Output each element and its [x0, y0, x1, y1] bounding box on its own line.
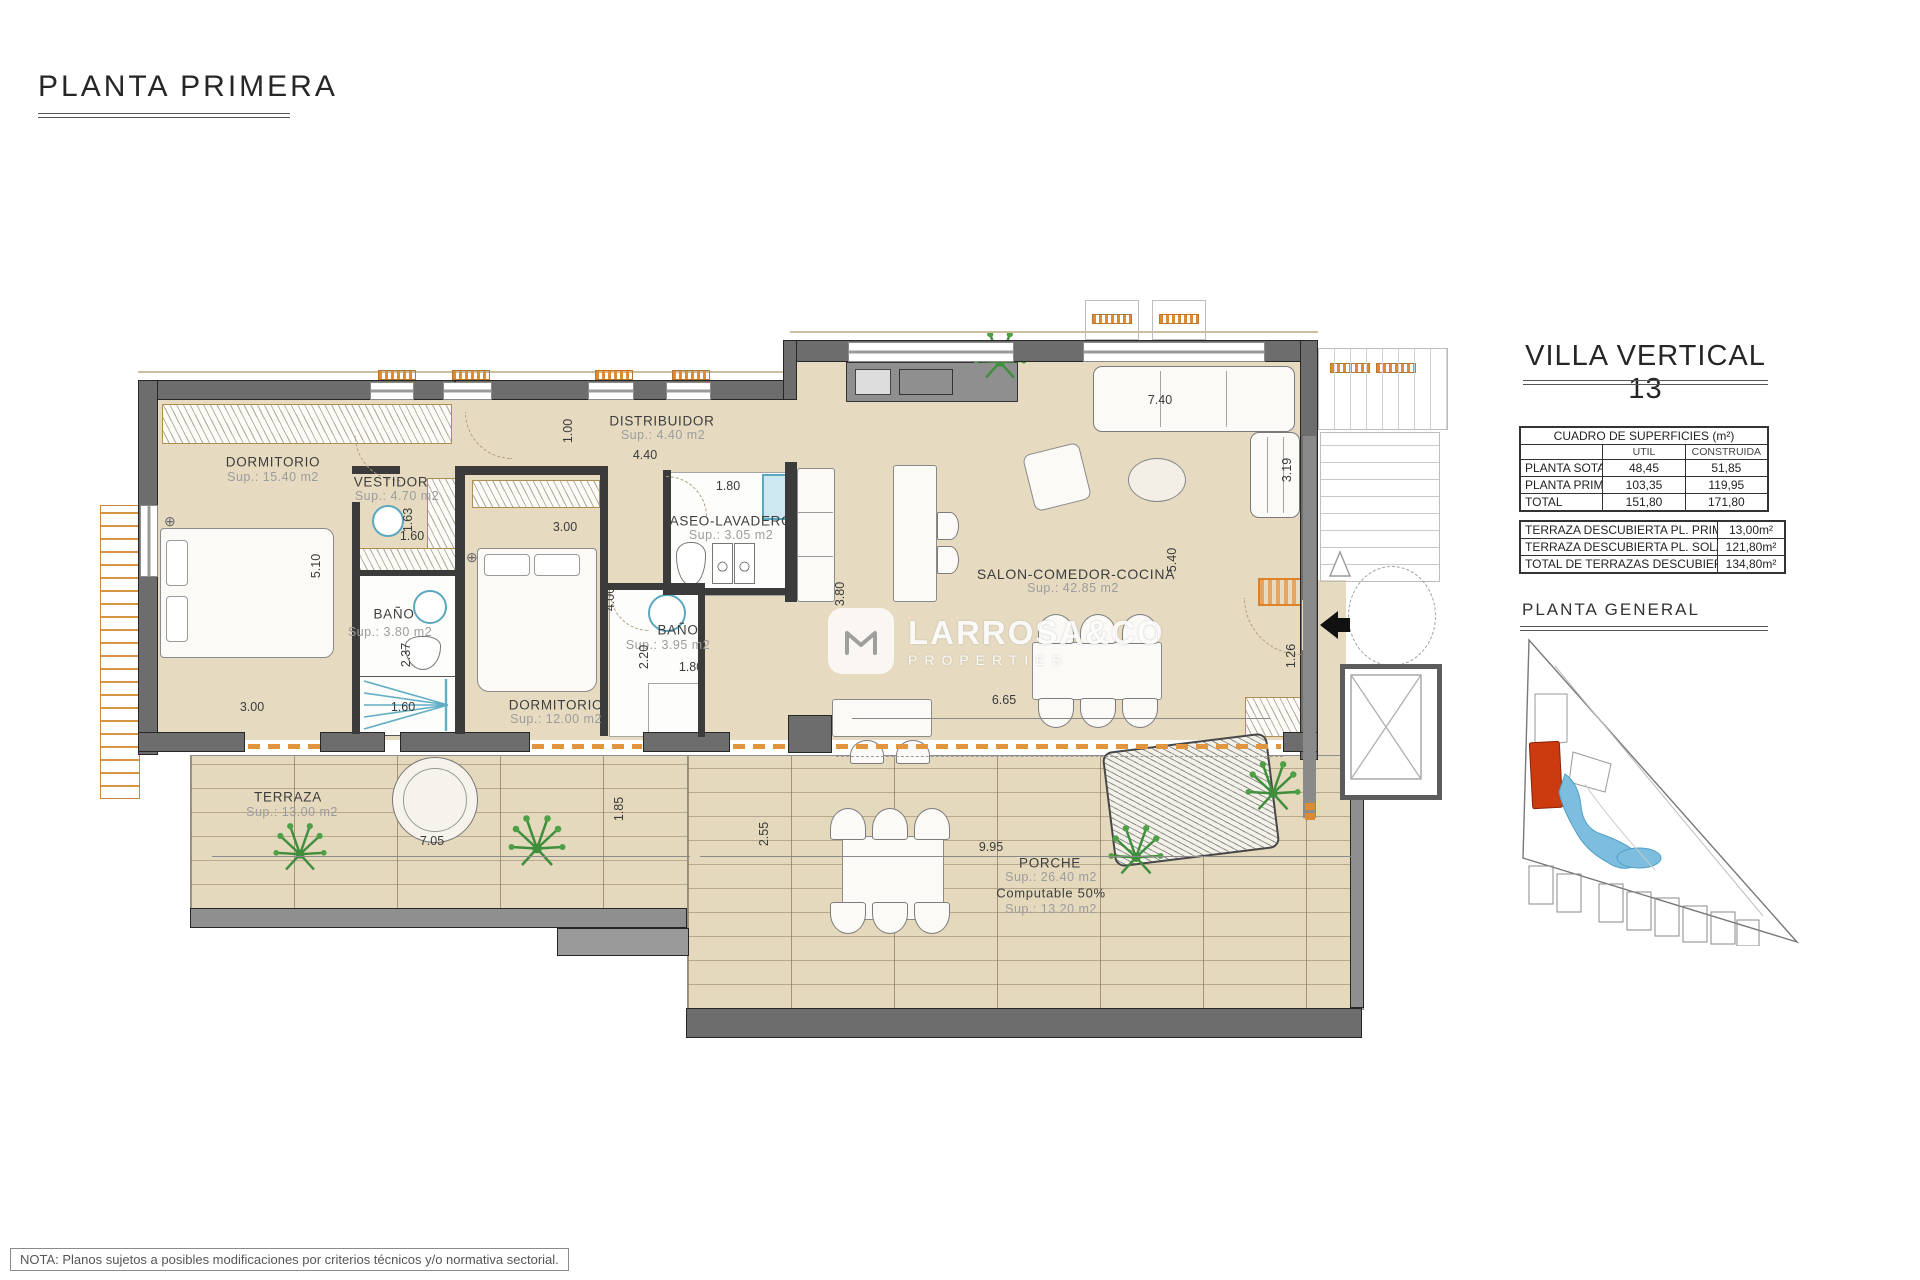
window-tick [595, 370, 633, 380]
porche-edge-wall [686, 1008, 1362, 1038]
dim-label: 3.00 [240, 700, 264, 714]
dim-label: 1.00 [561, 419, 575, 443]
wall-bottom [138, 732, 245, 752]
pillow [534, 554, 580, 576]
pillow [166, 596, 188, 642]
plant-icon [1107, 824, 1165, 882]
surfaces-table-title: CUADRO DE SUPERFICIES (m²) [1521, 428, 1768, 445]
table-row: TOTAL 151,80 171,80 [1521, 494, 1768, 511]
villa-title: VILLA VERTICAL 13 [1523, 340, 1768, 406]
cell-util: 151,80 [1603, 494, 1685, 511]
kitchen-tall-units [797, 468, 835, 602]
terraza-step-wall [557, 928, 689, 956]
dim-label: 3.19 [1280, 458, 1294, 482]
dim-label: 3.80 [833, 582, 847, 606]
window-left [140, 505, 158, 577]
cell-value: 121,80m² [1718, 539, 1785, 556]
wall-bottom-corner [788, 715, 832, 753]
table-row: CUADRO DE SUPERFICIES (m²) [1521, 428, 1768, 445]
slider-track [836, 756, 1283, 757]
wall-bottom [320, 732, 385, 752]
exterior-stair-strip [100, 505, 140, 799]
washer [734, 543, 755, 584]
dim-label: 6.65 [992, 693, 1016, 707]
dim-label: 2.55 [757, 822, 771, 846]
cell-construida: 51,85 [1685, 460, 1767, 477]
room-label: DORMITORIO [509, 698, 604, 713]
empty-cell [1521, 445, 1603, 460]
unit-divider [797, 556, 833, 557]
window-tick [1092, 314, 1132, 324]
kitchen-sink [855, 369, 891, 395]
room-sup: Sup.: 15.40 m2 [227, 470, 319, 484]
entrance-arrow-icon [1338, 618, 1350, 632]
pillow [166, 540, 188, 586]
window-tick [452, 370, 490, 380]
window-tick [1159, 314, 1199, 324]
window-tick [672, 370, 710, 380]
room-label: ASEO-LAVADERO [670, 514, 793, 529]
table-row: PLANTA SOTANO 48,45 51,85 [1521, 460, 1768, 477]
window [588, 382, 634, 400]
site-plan-title: PLANTA GENERAL [1522, 600, 1700, 620]
threshold [248, 744, 320, 749]
room-label: BAÑO [373, 607, 414, 622]
room-sup: Sup.: 13.20 m2 [1005, 902, 1097, 916]
nightstand-mark: ⊕ [466, 550, 478, 564]
coffee-table [1128, 458, 1186, 502]
larrosa-logo-icon [828, 608, 894, 674]
entrance-arrow-icon [1320, 611, 1338, 639]
wardrobe-hatch-salon [1245, 697, 1302, 737]
threshold [733, 744, 785, 749]
cell-util: 103,35 [1603, 477, 1685, 494]
dim-label: 7.05 [420, 834, 444, 848]
dim-label: 1.85 [612, 797, 626, 821]
window-tick [378, 370, 416, 380]
window [443, 382, 492, 400]
nightstand-mark: ⊕ [164, 514, 176, 528]
elevator-x-icon [1345, 669, 1427, 785]
row-label: PLANTA SOTANO [1521, 460, 1603, 477]
dim-label: 9.95 [979, 840, 1003, 854]
table-row: TERRAZA DESCUBIERTA PL. PRIMERA 13,00m² [1521, 522, 1785, 539]
site-plan [1515, 634, 1805, 946]
table-row: PLANTA PRIMERA 103,35 119,95 [1521, 477, 1768, 494]
dim-label: 5.10 [309, 554, 323, 578]
shower-bano2 [648, 683, 700, 733]
room-sup: Sup.: 13.00 m2 [246, 805, 338, 819]
dim-label: 1.60 [391, 700, 415, 714]
cell-construida: 171,80 [1685, 494, 1767, 511]
partition [785, 462, 797, 602]
room-sup: Sup.: 12.00 m2 [510, 712, 602, 726]
cell-construida: 119,95 [1685, 477, 1767, 494]
terrace-round-table [392, 757, 478, 843]
wall-bottom [400, 732, 530, 752]
villa-title-underline [1523, 380, 1768, 385]
row-label: TERRAZA DESCUBIERTA PL. PRIMERA [1521, 522, 1718, 539]
row-label: TOTAL [1521, 494, 1603, 511]
stairs-upper [1318, 348, 1448, 430]
stair-circle [1348, 566, 1436, 666]
room-sup: Sup.: 3.80 m2 [348, 625, 432, 639]
washer [712, 543, 733, 584]
dim-label: 4.00 [603, 587, 617, 611]
party-wall [1303, 436, 1316, 818]
row-label: TERRAZA DESCUBIERTA PL. SOLARIUM [1521, 539, 1718, 556]
partition [352, 570, 458, 576]
dim-label: 1.26 [1284, 644, 1298, 668]
row-label: TOTAL DE TERRAZAS DESCUBIERTAS [1521, 556, 1718, 573]
plant-icon [507, 814, 567, 874]
watermark: LARROSA&CO PROPERTIES [828, 608, 1165, 674]
dim-line [212, 856, 690, 857]
threshold [532, 744, 642, 749]
room-label: DISTRIBUIDOR [609, 414, 714, 429]
room-label: BAÑO [657, 623, 698, 638]
room-label: VESTIDOR [354, 475, 429, 490]
col-header-construida: CONSTRUIDA [1685, 445, 1767, 460]
dim-label: 4.40 [633, 448, 657, 462]
room-sup: Sup.: 4.40 m2 [621, 428, 705, 442]
window [370, 382, 414, 400]
threshold [836, 744, 1281, 749]
partition [352, 502, 360, 734]
dim-label: 2.37 [399, 643, 413, 667]
partition [608, 583, 703, 590]
cell-value: 13,00m² [1718, 522, 1785, 539]
room-label: SALON-COMEDOR-COCINA [977, 566, 1175, 582]
room-label: PORCHE [1019, 856, 1081, 871]
room-label: TERRAZA [254, 790, 322, 805]
terraces-table: TERRAZA DESCUBIERTA PL. PRIMERA 13,00m² … [1520, 521, 1785, 573]
dim-label: 1.80 [716, 479, 740, 493]
dim-label: 3.00 [553, 520, 577, 534]
sink-bano1 [413, 590, 447, 624]
bar-stool [937, 546, 959, 574]
dim-label: 7.40 [1148, 393, 1172, 407]
watermark-name: LARROSA&CO [908, 614, 1165, 652]
site-plan-underline [1520, 626, 1768, 631]
note-box: NOTA: Planos sujetos a posibles modifica… [10, 1248, 569, 1271]
wardrobe-hatch-dorm1 [162, 404, 452, 444]
cell-util: 48,45 [1603, 460, 1685, 477]
page-title-underline [38, 113, 290, 118]
col-header-util: UTIL [1603, 445, 1685, 460]
cell-value: 134,80m² [1718, 556, 1785, 573]
pillow [484, 554, 530, 576]
watermark-text: LARROSA&CO PROPERTIES [908, 614, 1165, 668]
unit-divider [797, 512, 833, 513]
kitchen-island [893, 465, 937, 602]
dim-line [852, 718, 1270, 719]
orange-marker [1305, 813, 1315, 820]
table-row: UTIL CONSTRUIDA [1521, 445, 1768, 460]
kitchen-stove [899, 369, 953, 395]
dim-label: 1.60 [400, 529, 424, 543]
room-sup: Sup.: 3.05 m2 [689, 528, 773, 542]
surfaces-table: CUADRO DE SUPERFICIES (m²) UTIL CONSTRUI… [1520, 427, 1768, 511]
plant-icon [1244, 760, 1302, 818]
room-label-computable: Computable 50% [996, 886, 1106, 901]
window [848, 342, 1014, 362]
floorplan-sheet: PLANTA PRIMERA ⊕ ⊕ ⊕ [0, 0, 1920, 1280]
partition [461, 466, 607, 475]
dim-label: 5.40 [1165, 548, 1179, 572]
sill-line [790, 331, 1318, 333]
orange-marker [1305, 803, 1315, 810]
room-sup: Sup.: 4.70 m2 [355, 489, 439, 503]
dim-label: 1.80 [679, 660, 703, 674]
row-label: PLANTA PRIMERA [1521, 477, 1603, 494]
partition [455, 466, 465, 734]
room-label: DORMITORIO [226, 455, 321, 470]
terraza-edge-wall [190, 908, 687, 928]
dim-label: 2.20 [637, 645, 651, 669]
room-sup: Sup.: 26.40 m2 [1005, 870, 1097, 884]
table-row: TOTAL DE TERRAZAS DESCUBIERTAS 134,80m² [1521, 556, 1785, 573]
sofa [1093, 366, 1295, 432]
wardrobe-hatch-dorm2 [472, 480, 600, 508]
watermark-tagline: PROPERTIES [908, 652, 1165, 668]
window [1083, 342, 1265, 362]
table-row: TERRAZA DESCUBIERTA PL. SOLARIUM 121,80m… [1521, 539, 1785, 556]
elevator-shaft [1340, 664, 1442, 800]
bar-stool [937, 512, 959, 540]
wall-bottom [643, 732, 730, 752]
stair-direction-arrow [1328, 550, 1352, 578]
window [666, 382, 711, 400]
room-sup: Sup.: 42.85 m2 [1027, 581, 1119, 595]
page-title: PLANTA PRIMERA [38, 70, 338, 104]
plant-icon [272, 822, 328, 878]
wall-step [783, 340, 797, 400]
